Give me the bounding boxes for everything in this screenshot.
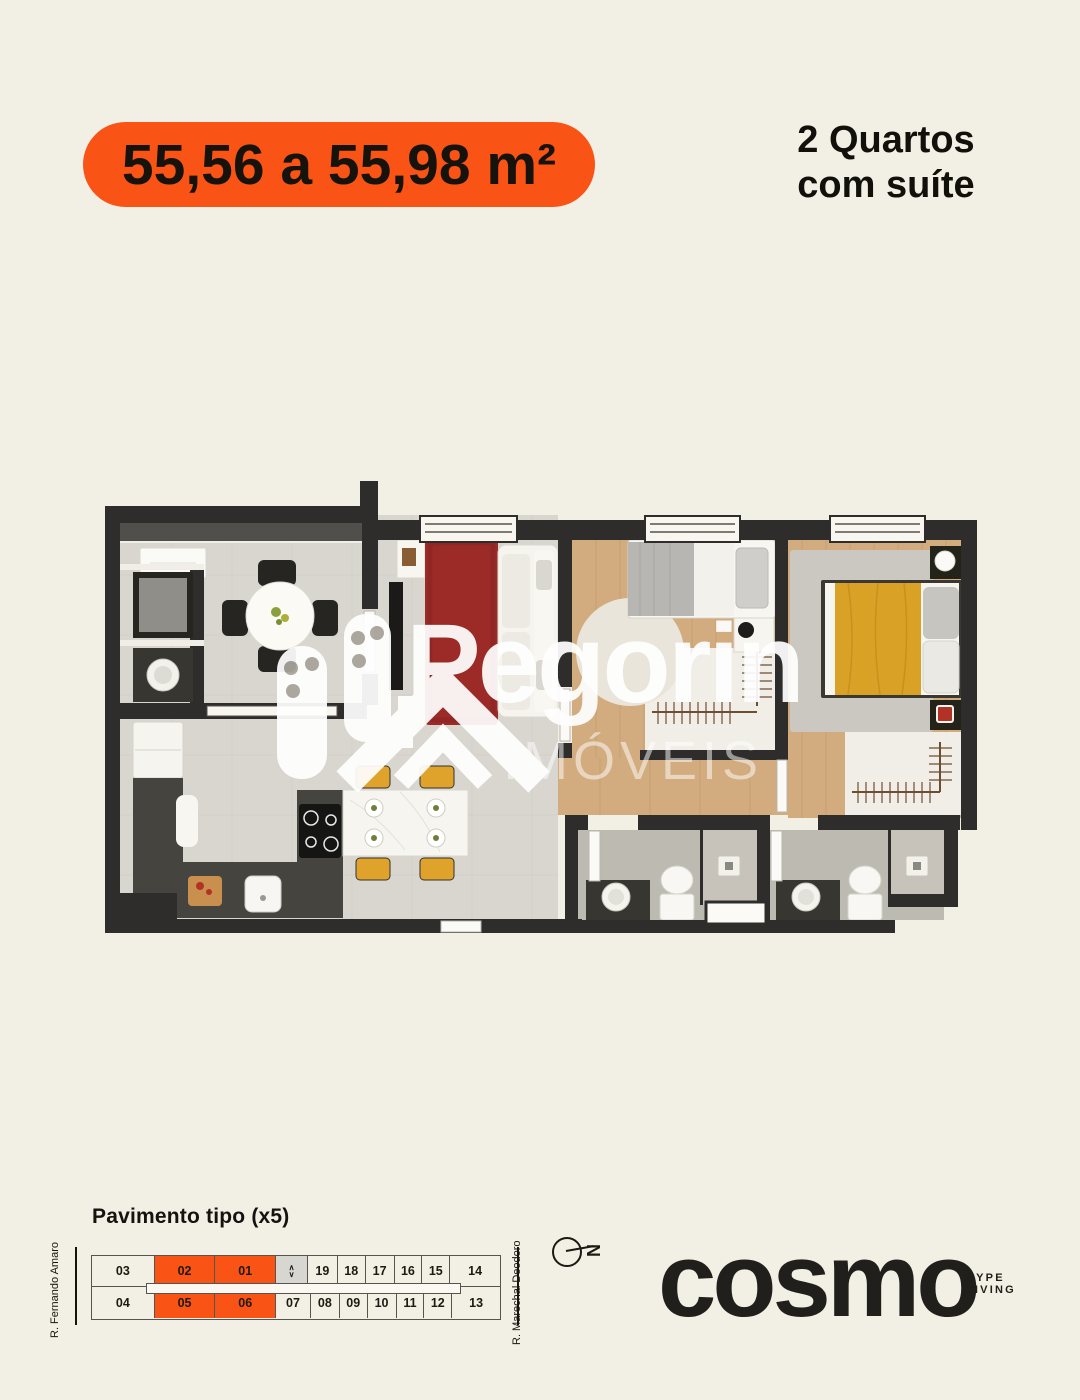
street-label-right: R. Marechal Deodoro [511, 1240, 523, 1345]
unit-cell-03: 03 [92, 1256, 155, 1286]
watermark: Pegorin IMÓVEIS [277, 601, 802, 791]
unit-cell-01: 01 [215, 1256, 276, 1286]
window [420, 516, 517, 542]
area-badge: 55,56 a 55,98 m² [83, 122, 595, 207]
unit-cell-19: 19 [308, 1256, 338, 1286]
unit-cell-17: 17 [366, 1256, 395, 1286]
unit-cell-14: 14 [450, 1256, 500, 1286]
unit-cell-02: 02 [155, 1256, 216, 1286]
corridor-bar [146, 1283, 461, 1294]
compass-icon [552, 1237, 582, 1267]
brand-logo-cosmo: cosmo [658, 1228, 976, 1333]
unit-cell-18: 18 [338, 1256, 366, 1286]
unit-cell-16: 16 [395, 1256, 423, 1286]
window [645, 516, 740, 542]
floor-plan-type-label: Pavimento tipo (x5) [92, 1205, 290, 1229]
brand-tagline-line1: HYPE [966, 1272, 1016, 1284]
flyer-page: { "page": { "background": "#f2efe4" }, "… [0, 0, 1080, 1400]
lamp [935, 551, 955, 571]
street-line-left [75, 1247, 77, 1325]
floor-plan: Pegorin IMÓVEIS [100, 478, 980, 938]
brand-tagline: HYPE LIVING [966, 1272, 1016, 1296]
unit-type-line2: com suíte [780, 163, 992, 208]
street-label-left: R. Fernando Amaro [49, 1242, 61, 1338]
elevator-cell: ∧ ∨ [276, 1256, 308, 1286]
watermark-brand-text: Pegorin [406, 601, 802, 726]
double-bed [821, 580, 963, 698]
unit-type-line1: 2 Quartos [780, 118, 992, 163]
brand-tagline-line2: LIVING [966, 1284, 1016, 1296]
unit-cell-15: 15 [422, 1256, 450, 1286]
area-badge-label: 55,56 a 55,98 m² [122, 132, 556, 198]
unit-type-label: 2 Quartos com suíte [780, 118, 992, 208]
tv-panel [389, 582, 403, 690]
elevator-down-icon: ∨ [289, 1271, 295, 1278]
compass-north-letter: N [582, 1244, 603, 1257]
watermark-subtitle-text: IMÓVEIS [503, 731, 763, 791]
window [830, 516, 925, 542]
